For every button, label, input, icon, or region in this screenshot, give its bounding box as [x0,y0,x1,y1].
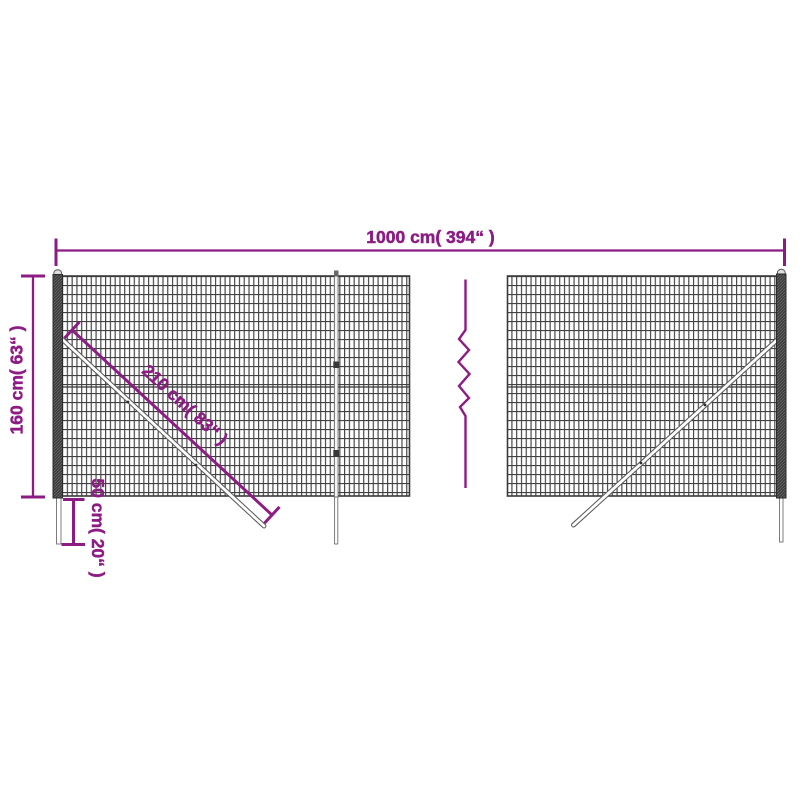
svg-text:160 cm( 63“ ): 160 cm( 63“ ) [7,326,27,435]
svg-text:50 cm( 20“ ): 50 cm( 20“ ) [88,478,108,577]
svg-text:1000 cm( 394“ ): 1000 cm( 394“ ) [366,227,494,247]
